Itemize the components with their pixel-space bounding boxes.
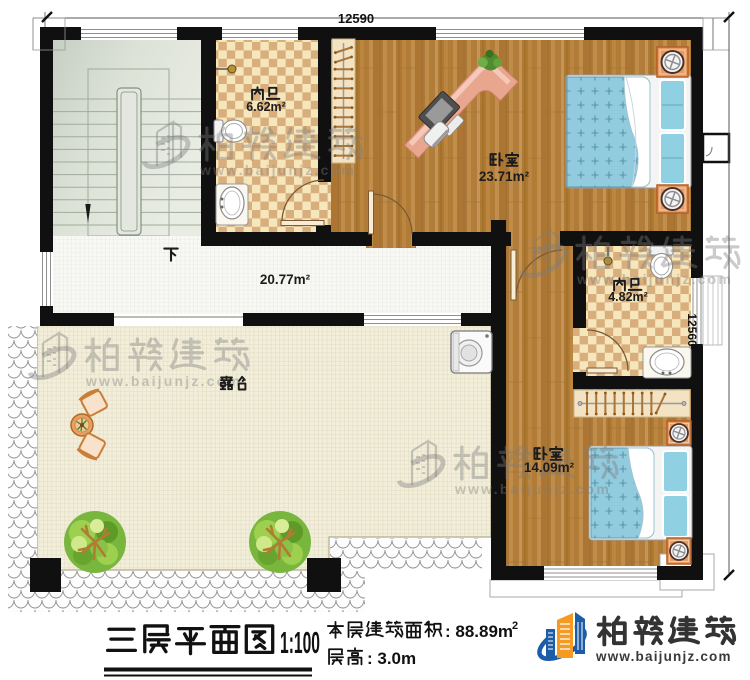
svg-text:: 3.0m: : 3.0m xyxy=(367,649,416,668)
svg-text:www.baijunjz.com: www.baijunjz.com xyxy=(576,271,733,287)
svg-text:2: 2 xyxy=(512,620,518,632)
svg-text:14.09m²: 14.09m² xyxy=(524,460,575,475)
svg-text:www.baijunjz.com: www.baijunjz.com xyxy=(199,162,356,178)
svg-text:23.71m²: 23.71m² xyxy=(479,169,530,184)
svg-text:4.82m²: 4.82m² xyxy=(608,290,648,304)
svg-text:www.baijunjz.com: www.baijunjz.com xyxy=(454,481,611,497)
svg-text:1:100: 1:100 xyxy=(280,625,320,660)
svg-text:6.62m²: 6.62m² xyxy=(246,100,286,114)
svg-text:20.77m²: 20.77m² xyxy=(260,272,311,287)
svg-text:www.baijunjz.com: www.baijunjz.com xyxy=(595,649,732,664)
svg-text:: 88.89m: : 88.89m xyxy=(445,622,513,641)
svg-text:12590: 12590 xyxy=(338,11,374,26)
svg-text:www.baijunjz.com: www.baijunjz.com xyxy=(85,373,242,389)
svg-text:12560: 12560 xyxy=(685,313,699,347)
